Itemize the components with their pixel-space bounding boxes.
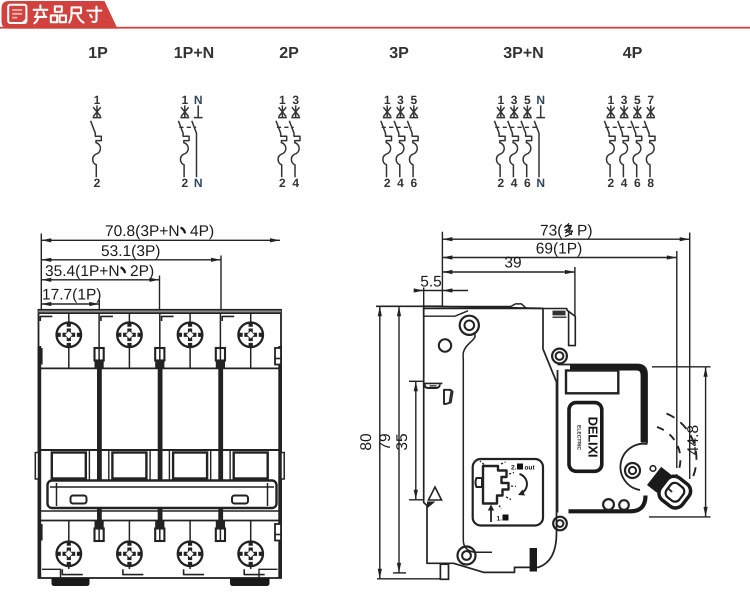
svg-text:4: 4	[621, 176, 628, 190]
svg-text:1: 1	[94, 93, 101, 107]
svg-text:1P+N: 1P+N	[174, 45, 214, 62]
svg-text:2: 2	[607, 176, 614, 190]
svg-text:N: N	[536, 176, 545, 190]
svg-text:80: 80	[358, 433, 375, 451]
svg-text:1P: 1P	[88, 45, 108, 62]
svg-text:8: 8	[647, 176, 654, 190]
svg-text:4: 4	[292, 176, 299, 190]
svg-text:79: 79	[377, 433, 394, 450]
svg-text:3P: 3P	[389, 45, 409, 62]
svg-text:1.: 1.	[497, 516, 503, 523]
svg-text:1: 1	[497, 93, 504, 107]
svg-text:5.5: 5.5	[420, 274, 442, 291]
svg-text:1: 1	[279, 93, 286, 107]
svg-text:35: 35	[394, 433, 411, 450]
svg-text:69(1P): 69(1P)	[536, 240, 583, 257]
svg-text:4P): 4P)	[190, 223, 214, 240]
svg-text:3: 3	[511, 93, 518, 107]
svg-text:70.8(3P+N: 70.8(3P+N	[105, 223, 180, 240]
svg-text:ELECTRIC: ELECTRIC	[576, 425, 582, 450]
svg-text:6: 6	[524, 176, 531, 190]
svg-text:N: N	[536, 93, 545, 107]
svg-text:N: N	[194, 93, 203, 107]
svg-text:5: 5	[524, 93, 531, 107]
svg-text:17.7(1P): 17.7(1P)	[42, 287, 101, 304]
svg-text:2: 2	[181, 176, 188, 190]
svg-text:4P: 4P	[623, 45, 643, 62]
svg-text:N: N	[194, 176, 203, 190]
svg-text:4: 4	[397, 176, 404, 190]
svg-text:5: 5	[410, 93, 417, 107]
svg-text:6: 6	[410, 176, 417, 190]
svg-text:4: 4	[511, 176, 518, 190]
svg-text:2: 2	[279, 176, 286, 190]
svg-text:2: 2	[94, 176, 101, 190]
svg-text:2P: 2P	[279, 45, 299, 62]
svg-text:3P+N: 3P+N	[503, 45, 543, 62]
svg-text:3: 3	[621, 93, 628, 107]
svg-text:1: 1	[607, 93, 614, 107]
svg-text:53.1(3P): 53.1(3P)	[101, 243, 160, 260]
svg-text:3: 3	[292, 93, 299, 107]
svg-text:DELIXI: DELIXI	[586, 417, 601, 458]
svg-text:6: 6	[634, 176, 641, 190]
svg-text:39: 39	[504, 255, 521, 272]
svg-text:35.4(1P+N: 35.4(1P+N	[45, 263, 120, 280]
svg-text:73(: 73(	[540, 222, 563, 239]
svg-text:1: 1	[181, 93, 188, 107]
svg-text:2P): 2P)	[130, 263, 154, 280]
svg-text:out: out	[525, 465, 536, 472]
svg-text:1: 1	[384, 93, 391, 107]
svg-text:7: 7	[647, 93, 654, 107]
svg-text:2: 2	[384, 176, 391, 190]
svg-text:P): P)	[577, 222, 593, 239]
svg-text:5: 5	[634, 93, 641, 107]
svg-text:2: 2	[497, 176, 504, 190]
svg-text:2.: 2.	[511, 465, 517, 472]
svg-text:3: 3	[397, 93, 404, 107]
